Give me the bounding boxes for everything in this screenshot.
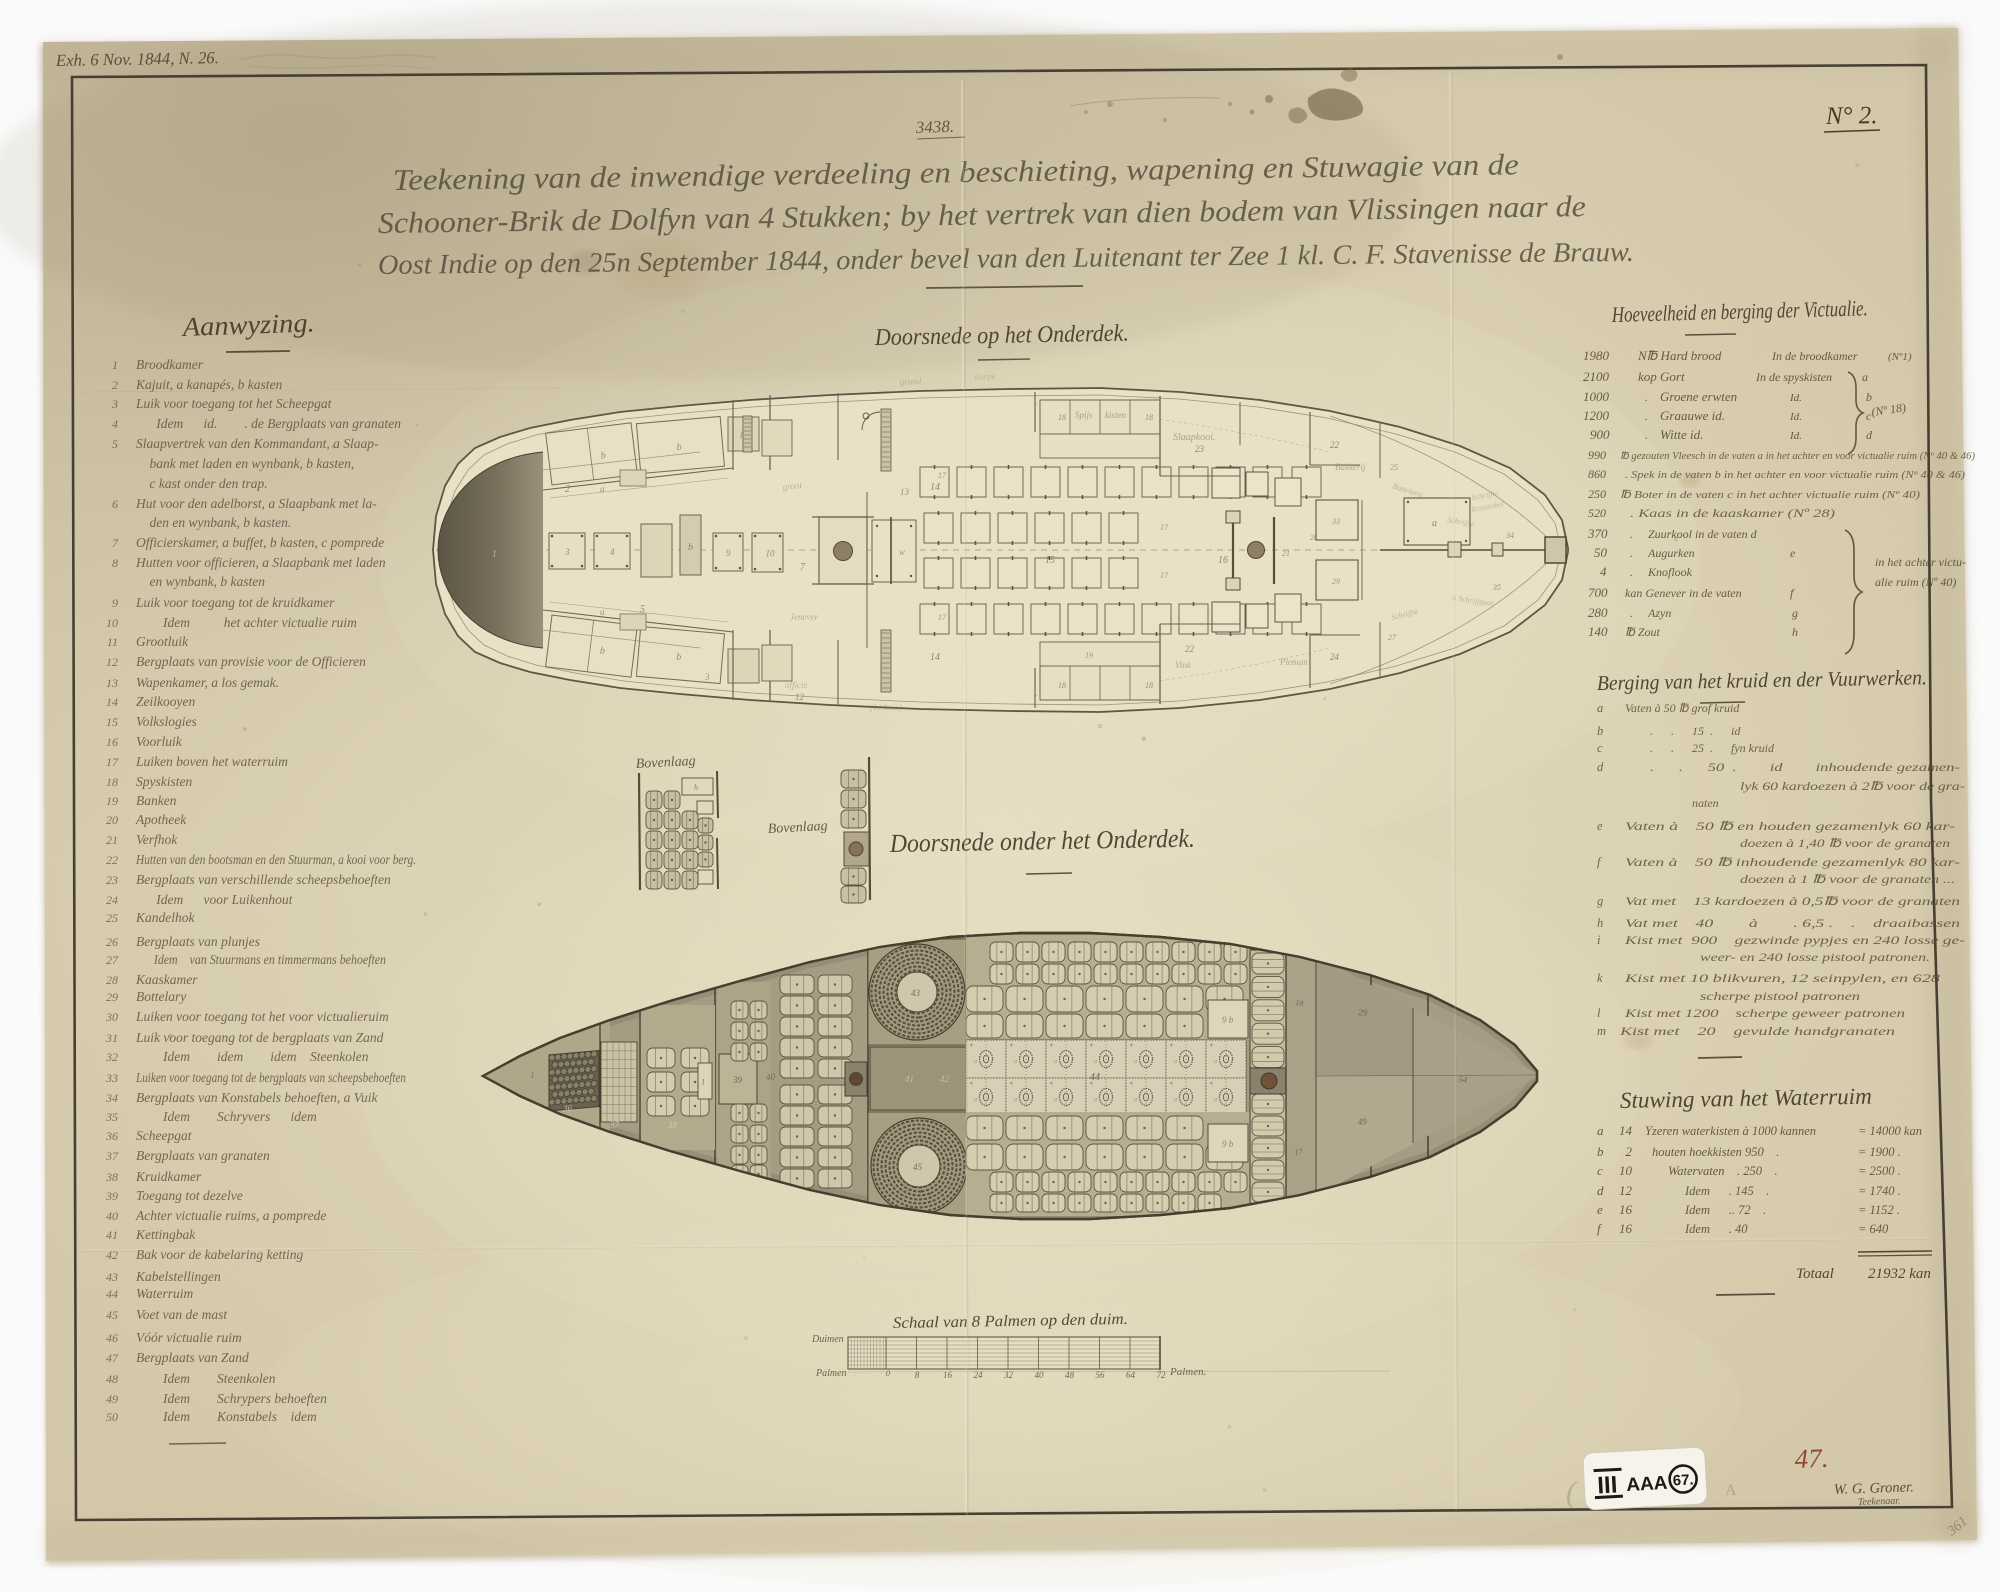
svg-text:Voorluik: Voorluik: [136, 734, 183, 749]
svg-text:Vaten à 50 ℔ grof kruid: Vaten à 50 ℔ grof kruid: [1625, 701, 1740, 715]
svg-text:Kajuit, a kanapés, b kasten: Kajuit, a kanapés, b kasten: [135, 377, 282, 392]
svg-text:24: 24: [106, 893, 118, 907]
svg-text:13: 13: [900, 487, 910, 497]
svg-text:N℔ Hard brood: N℔ Hard brood: [1637, 348, 1722, 363]
svg-text:1200: 1200: [1583, 408, 1610, 423]
svg-text:Aanwyzing.: Aanwyzing.: [180, 307, 315, 342]
svg-text:.: .: [1645, 409, 1648, 423]
svg-text:Kaaskamer: Kaaskamer: [135, 972, 198, 987]
svg-text:b: b: [688, 542, 693, 553]
svg-text:groot: groot: [782, 480, 803, 492]
svg-text:33: 33: [1331, 517, 1340, 526]
svg-text:*: *: [1129, 1080, 1133, 1089]
svg-text:14: 14: [1619, 1123, 1633, 1138]
svg-text:.: .: [1630, 527, 1633, 541]
svg-text:14: 14: [930, 652, 940, 663]
svg-text:*: *: [1129, 1042, 1133, 1051]
svg-text:i: i: [1597, 933, 1601, 947]
svg-text:39: 39: [105, 1189, 118, 1203]
svg-text:10: 10: [1619, 1163, 1633, 1178]
svg-text:Kabelstellingen: Kabelstellingen: [135, 1269, 221, 1284]
svg-text:b: b: [1597, 724, 1603, 738]
svg-text:44: 44: [106, 1287, 118, 1301]
svg-text:Idem id. . de Bergplaats va: Idem id. . de Bergplaats van granaten: [136, 416, 401, 431]
svg-text:Idem van Stuurmans en timmerm: Idem van Stuurmans en timmermans behoeft…: [136, 952, 386, 967]
svg-text:doezen à 1 ℔ voor de granaten: doezen à 1 ℔ voor de granaten ...: [1740, 872, 1955, 886]
svg-text:den en wynbank, b kasten.: den en wynbank, b kasten.: [136, 515, 291, 530]
svg-text:*: *: [1209, 1080, 1213, 1089]
svg-text:Vat met 13 kardoezen à 0,5℔ v: Vat met 13 kardoezen à 0,5℔ voor de gran…: [1625, 894, 1960, 908]
svg-text:*: *: [1049, 1042, 1053, 1051]
svg-text:26: 26: [106, 935, 118, 949]
svg-text:700: 700: [1588, 585, 1608, 600]
svg-text:Vink: Vink: [1175, 660, 1192, 670]
svg-text:42: 42: [940, 1074, 950, 1084]
svg-text:. . 25 . fyn kruid: . . 25 . fyn kruid: [1650, 741, 1775, 755]
svg-text:47.: 47.: [1794, 1443, 1829, 1474]
svg-text:a: a: [1134, 1059, 1137, 1065]
svg-text:Idem .. 72 .: Idem .. 72 .: [1684, 1203, 1766, 1217]
svg-text:.: .: [1645, 428, 1648, 442]
svg-text:Exh. 6 Nov. 1844, N. 26.: Exh. 6 Nov. 1844, N. 26.: [55, 48, 219, 70]
svg-text:Slaapkooi.: Slaapkooi.: [1173, 432, 1216, 443]
svg-text:6: 6: [112, 497, 118, 511]
svg-text:*: *: [1009, 1080, 1013, 1089]
svg-text:Kist met 20 gevulde handgran: Kist met 20 gevulde handgranaten: [1618, 1024, 1895, 1038]
svg-text:5: 5: [112, 437, 118, 451]
svg-text:Palmen.: Palmen.: [1169, 1366, 1206, 1378]
svg-text:14: 14: [106, 695, 118, 709]
svg-text:Duimen: Duimen: [811, 1334, 844, 1345]
svg-text:Kruidkamer: Kruidkamer: [135, 1169, 202, 1184]
svg-text:Idem idem idem Steenkolen: Idem idem idem Steenkolen: [136, 1049, 369, 1064]
svg-text:1: 1: [530, 1070, 535, 1080]
svg-text:alie ruim (Nº 40): alie ruim (Nº 40): [1875, 575, 1956, 589]
svg-text:7: 7: [112, 536, 119, 550]
svg-text:Plenum: Plenum: [1279, 657, 1308, 667]
svg-text:a: a: [1014, 1097, 1017, 1103]
svg-text:17: 17: [938, 613, 947, 622]
svg-text:(Nº1): (Nº1): [1888, 351, 1912, 363]
svg-text:. Kaas in de kaaskamer (Nº: . Kaas in de kaaskamer (Nº 28): [1630, 506, 1835, 520]
svg-text:= 1152 .: = 1152 .: [1858, 1203, 1900, 1217]
svg-text:47: 47: [106, 1351, 119, 1365]
svg-text:28: 28: [106, 973, 118, 987]
svg-text:48: 48: [106, 1372, 118, 1386]
svg-text:29: 29: [1358, 1007, 1368, 1018]
svg-text:doezen à 1,40 ℔ voor de granat: doezen à 1,40 ℔ voor de granaten: [1740, 836, 1950, 850]
svg-text:39: 39: [732, 1075, 743, 1085]
svg-text:weer- en 240 losse pistool pat: weer- en 240 losse pistool patronen.: [1700, 950, 1930, 964]
svg-text:49: 49: [1357, 1116, 1367, 1127]
svg-text:10: 10: [106, 616, 118, 630]
svg-text:b: b: [676, 442, 682, 453]
svg-text:h: h: [694, 783, 698, 792]
svg-text:kan Genever in de vaten: kan Genever in de vaten: [1625, 586, 1742, 600]
svg-text:35: 35: [105, 1110, 118, 1124]
svg-text:e: e: [1597, 1202, 1603, 1217]
svg-text:15: 15: [106, 715, 118, 729]
svg-text:250: 250: [1588, 487, 1606, 501]
svg-text:a: a: [1174, 1059, 1177, 1065]
svg-text:lyk 60 kardoezen à 2℔ voor de: lyk 60 kardoezen à 2℔ voor de gra-: [1740, 779, 1965, 793]
svg-text:b: b: [1597, 1144, 1604, 1159]
svg-text:18: 18: [1145, 413, 1153, 422]
svg-text:a: a: [600, 484, 605, 494]
svg-text:Volkslogies: Volkslogies: [136, 714, 197, 729]
svg-text:en wynbank, b kasten: en wynbank, b kasten: [136, 574, 265, 589]
svg-text:Kist met 900 gezwinde pypjes: Kist met 900 gezwinde pypjes en 240 loss…: [1624, 933, 1965, 947]
svg-text:13: 13: [106, 676, 118, 690]
svg-text:30: 30: [105, 1010, 118, 1024]
svg-text:35: 35: [1492, 583, 1501, 592]
svg-text:520: 520: [1588, 506, 1606, 520]
svg-text:43: 43: [106, 1270, 118, 1284]
svg-text:3: 3: [111, 397, 118, 411]
svg-text:46: 46: [106, 1331, 118, 1345]
svg-text:In de spyskisten: In de spyskisten: [1755, 370, 1832, 384]
svg-text:9 b: 9 b: [1222, 1015, 1234, 1025]
svg-text:Luik voor toegang tot de bergp: Luik voor toegang tot de bergplaats van …: [135, 1030, 384, 1045]
svg-text:18: 18: [106, 775, 118, 789]
svg-text:a: a: [1432, 518, 1437, 529]
svg-text:Hutten van den bootsman en den: Hutten van den bootsman en den Stuurman,…: [135, 852, 416, 867]
svg-text:2100: 2100: [1583, 369, 1610, 384]
svg-text:37: 37: [105, 1149, 119, 1163]
svg-text:Palmen: Palmen: [815, 1368, 847, 1379]
svg-text:c kast onder den trap.: c kast onder den trap.: [136, 476, 268, 491]
svg-text:19: 19: [1085, 651, 1093, 660]
svg-text:.: .: [1645, 390, 1648, 404]
svg-text:℔ gezouten Vleesch in de vate: ℔ gezouten Vleesch in de vaten a in het …: [1620, 451, 1976, 462]
svg-text:50: 50: [1594, 545, 1608, 560]
svg-text:40: 40: [106, 1209, 118, 1223]
svg-text:1: 1: [492, 549, 497, 560]
svg-text:Spyskisten: Spyskisten: [136, 774, 192, 789]
svg-text:11: 11: [107, 635, 118, 649]
svg-text:4: 4: [1600, 564, 1607, 579]
svg-text:W. G. Groner.: W. G. Groner.: [1834, 1479, 1914, 1498]
svg-text:22: 22: [1330, 440, 1340, 450]
svg-text:Spijs: Spijs: [1075, 410, 1093, 420]
svg-text:34: 34: [105, 1091, 118, 1105]
svg-text:Stuwing van het Waterruim: Stuwing van het Waterruim: [1620, 1084, 1872, 1113]
svg-text:h: h: [1597, 916, 1603, 930]
svg-text:a: a: [1174, 1097, 1177, 1103]
svg-text:9 b: 9 b: [1222, 1139, 1234, 1149]
svg-text:9: 9: [726, 548, 731, 558]
svg-text:Doorsnede op het Onderdek.: Doorsnede op het Onderdek.: [874, 321, 1129, 351]
svg-text:g: g: [1597, 894, 1603, 908]
svg-text:41: 41: [905, 1074, 914, 1084]
svg-text:a: a: [1014, 1059, 1017, 1065]
svg-text:= 1740 .: = 1740 .: [1858, 1184, 1901, 1198]
svg-text:15: 15: [1045, 555, 1055, 566]
svg-text:1: 1: [112, 358, 118, 372]
svg-text:2: 2: [565, 484, 570, 495]
svg-text:a: a: [1134, 1097, 1137, 1103]
svg-text:21932 kan: 21932 kan: [1868, 1266, 1931, 1282]
svg-text:Jenever: Jenever: [790, 612, 818, 622]
svg-text:Azyn: Azyn: [1647, 606, 1671, 620]
svg-text:d: d: [1597, 1183, 1604, 1198]
svg-text:a: a: [1214, 1097, 1217, 1103]
svg-text:Verfhok: Verfhok: [136, 832, 178, 847]
svg-text:Idem Schrypers behoeften: Idem Schrypers behoeften: [136, 1391, 327, 1406]
svg-text:a: a: [1094, 1059, 1097, 1065]
svg-text:32: 32: [105, 1050, 118, 1064]
svg-text:AAA: AAA: [1626, 1473, 1668, 1496]
svg-text:Luiken boven het waterruim: Luiken boven het waterruim: [135, 754, 288, 769]
svg-text:kisten: kisten: [1105, 410, 1126, 420]
svg-text:Idem . 40: Idem . 40: [1684, 1222, 1748, 1236]
svg-text:20: 20: [106, 813, 118, 827]
svg-text:Banken: Banken: [136, 793, 177, 808]
svg-text:Idem Steenkolen: Idem Steenkolen: [136, 1371, 276, 1386]
svg-text:27: 27: [1388, 633, 1397, 642]
svg-text:Luik voor toegang tot het Sche: Luik voor toegang tot het Scheepgat: [135, 396, 333, 411]
svg-text:23: 23: [106, 873, 118, 887]
svg-text:45: 45: [106, 1308, 118, 1322]
svg-text:9: 9: [112, 596, 118, 610]
svg-text:Kettingbak: Kettingbak: [135, 1227, 196, 1242]
svg-text:19: 19: [106, 794, 118, 808]
svg-text:officie: officie: [785, 680, 808, 690]
svg-text:a: a: [1862, 370, 1868, 384]
svg-text:Bovenlaag: Bovenlaag: [767, 819, 828, 837]
svg-text:m: m: [1597, 1024, 1606, 1038]
svg-text:Id.: Id.: [1789, 411, 1802, 423]
svg-text:Luik voor toegang tot de kruid: Luik voor toegang tot de kruidkamer: [135, 595, 335, 610]
svg-text:*: *: [1209, 1042, 1213, 1051]
svg-text:4: 4: [112, 417, 118, 431]
svg-text:h: h: [1792, 625, 1798, 639]
svg-text:℔ Boter in de vaten c in het: ℔ Boter in de vaten c in het achter vict…: [1620, 489, 1920, 501]
svg-text:27: 27: [106, 953, 119, 967]
svg-text:67.: 67.: [1672, 1471, 1694, 1489]
svg-text:Wapenkamer, a los gemak.: Wapenkamer, a los gemak.: [136, 675, 279, 690]
svg-text:= 2500 .: = 2500 .: [1858, 1164, 1901, 1178]
svg-text:17: 17: [938, 471, 947, 480]
svg-text:.: .: [1630, 565, 1633, 579]
svg-text:e: e: [1790, 546, 1796, 560]
svg-text:860: 860: [1588, 467, 1606, 481]
svg-text:12: 12: [795, 692, 805, 702]
svg-text:2: 2: [112, 378, 118, 392]
svg-text:18: 18: [1145, 681, 1153, 690]
svg-text:8: 8: [915, 1370, 920, 1380]
svg-text:Grootluik: Grootluik: [136, 634, 189, 649]
svg-text:kop Gort: kop Gort: [1638, 369, 1685, 384]
svg-text:25: 25: [1390, 463, 1398, 472]
svg-text:Zeilkooyen: Zeilkooyen: [136, 694, 195, 709]
svg-text:22: 22: [106, 853, 118, 867]
svg-text:43: 43: [911, 988, 921, 998]
svg-text:= 1900 .: = 1900 .: [1858, 1145, 1901, 1159]
svg-text:10: 10: [766, 549, 776, 559]
svg-text:Officierskamer, a buffet, b ka: Officierskamer, a buffet, b kasten, c po…: [136, 535, 384, 550]
svg-text:w: w: [899, 547, 905, 557]
svg-text:Scheepgat: Scheepgat: [136, 1128, 193, 1143]
svg-text:d: d: [1597, 760, 1604, 774]
svg-text:54: 54: [1458, 1074, 1468, 1085]
svg-text:17: 17: [1160, 523, 1169, 532]
svg-text:990: 990: [1588, 448, 1606, 462]
svg-text:Hut voor den adelborst, a Slaa: Hut voor den adelborst, a Slaapbank met …: [135, 496, 377, 511]
svg-text:koepe: koepe: [974, 371, 996, 382]
svg-text:370: 370: [1587, 526, 1608, 541]
svg-text:Totaal: Totaal: [1796, 1266, 1834, 1282]
svg-text:37: 37: [609, 1120, 620, 1130]
svg-text:= 14000 kan: = 14000 kan: [1858, 1124, 1922, 1138]
svg-text:Apotheek: Apotheek: [135, 812, 187, 827]
svg-text:23: 23: [1195, 444, 1205, 454]
svg-text:Kandelhok: Kandelhok: [135, 910, 195, 925]
svg-text:b: b: [676, 652, 682, 663]
svg-text:140: 140: [1588, 624, 1608, 639]
svg-text:Slaapvertrek van den Kommandan: Slaapvertrek van den Kommandant, a Slaap…: [136, 436, 379, 451]
svg-text:bank met laden en wynbank, b k: bank met laden en wynbank, b kasten,: [136, 456, 354, 471]
svg-text:34: 34: [1505, 531, 1514, 540]
svg-text:l: l: [1597, 1006, 1601, 1020]
svg-text:44: 44: [1090, 1072, 1100, 1083]
svg-text:Bovenlaag: Bovenlaag: [635, 754, 696, 772]
svg-text:17: 17: [106, 755, 119, 769]
svg-text:3: 3: [704, 672, 710, 682]
svg-text:Bergplaats van granaten: Bergplaats van granaten: [136, 1148, 270, 1163]
svg-text:Idem het achter victualie ru: Idem het achter victualie ruim: [136, 615, 357, 630]
svg-text:12: 12: [1619, 1183, 1633, 1198]
svg-text:36: 36: [562, 1103, 572, 1114]
svg-text:Groene erwten: Groene erwten: [1660, 389, 1737, 404]
svg-text:31: 31: [105, 1031, 118, 1045]
svg-text:3438.: 3438.: [914, 117, 954, 137]
svg-text:*: *: [969, 1042, 973, 1051]
svg-text:Toegang tot dezelve: Toegang tot dezelve: [136, 1188, 243, 1203]
svg-text:a: a: [1094, 1097, 1097, 1103]
svg-text:℔ Zout: ℔ Zout: [1625, 625, 1660, 639]
svg-text:41: 41: [106, 1228, 118, 1242]
svg-text:18: 18: [1058, 681, 1066, 690]
svg-text:36: 36: [105, 1129, 118, 1143]
svg-text:Knoflook: Knoflook: [1647, 565, 1693, 579]
svg-text:scherpe pistool patronen: scherpe pistool patronen: [1700, 989, 1860, 1003]
svg-text:16: 16: [943, 1370, 953, 1380]
svg-text:*: *: [1169, 1042, 1173, 1051]
svg-text:4: 4: [610, 547, 615, 557]
svg-text:.: .: [1630, 606, 1633, 620]
svg-text:In de broodkamer: In de broodkamer: [1771, 349, 1858, 363]
svg-text:29: 29: [1332, 577, 1340, 586]
svg-text:Zuurkool in de vaten d: Zuurkool in de vaten d: [1648, 527, 1758, 541]
svg-text:Kist met 1200 scherpe geweer: Kist met 1200 scherpe geweer patronen: [1624, 1006, 1905, 1020]
svg-text:900: 900: [1590, 427, 1610, 442]
svg-text:280: 280: [1588, 605, 1608, 620]
svg-text:18: 18: [1295, 998, 1304, 1008]
svg-text:38: 38: [105, 1170, 118, 1184]
svg-text:Vóór victualie ruim: Vóór victualie ruim: [136, 1330, 242, 1345]
svg-text:grund: grund: [899, 375, 922, 387]
svg-text:c: c: [1597, 741, 1603, 755]
svg-text:12: 12: [106, 655, 118, 669]
svg-text:*: *: [1049, 1080, 1053, 1089]
svg-text:1000: 1000: [1583, 389, 1610, 404]
svg-text:38: 38: [667, 1120, 678, 1130]
svg-text:49: 49: [106, 1392, 118, 1406]
svg-text:Bergplaats van Konstabels beho: Bergplaats van Konstabels behoeften, a V…: [136, 1090, 378, 1105]
svg-text:Graauwe id.: Graauwe id.: [1660, 408, 1725, 423]
svg-text:17: 17: [1160, 571, 1169, 580]
svg-text:Kist met 10 blikvuren, 12 sein: Kist met 10 blikvuren, 12 seinpylen, en …: [1623, 971, 1940, 985]
svg-text:Yzeren waterkisten à 1000 kann: Yzeren waterkisten à 1000 kannen: [1645, 1124, 1816, 1138]
svg-text:Doorsnede onder het Onderdek.: Doorsnede onder het Onderdek.: [889, 824, 1195, 858]
svg-text:2: 2: [1626, 1144, 1633, 1159]
svg-text:Id.: Id.: [1789, 430, 1802, 442]
svg-text:a: a: [1098, 721, 1102, 730]
svg-text:a: a: [1597, 1123, 1604, 1138]
svg-text:N° 2.: N° 2.: [1825, 102, 1878, 130]
svg-text:24: 24: [1330, 652, 1340, 662]
svg-text:e: e: [1597, 819, 1603, 833]
svg-text:naten: naten: [1692, 796, 1719, 810]
svg-text:Augurken: Augurken: [1647, 546, 1695, 560]
svg-text:*: *: [1009, 1042, 1013, 1051]
svg-text:a: a: [974, 1097, 977, 1103]
svg-text:Bergplaats van plunjes: Bergplaats van plunjes: [136, 934, 260, 949]
svg-text:33: 33: [105, 1071, 118, 1085]
svg-text:Luiken voor toegang tot het vo: Luiken voor toegang tot het voor victual…: [135, 1009, 389, 1024]
svg-text:16: 16: [1619, 1221, 1633, 1236]
svg-text:c: c: [1597, 1163, 1603, 1178]
svg-text:50: 50: [106, 1410, 118, 1424]
svg-text:Waterruim: Waterruim: [136, 1286, 194, 1301]
svg-text:21: 21: [1282, 549, 1290, 558]
svg-text:29: 29: [106, 990, 118, 1004]
svg-text:40: 40: [766, 1072, 776, 1082]
svg-text:g: g: [1792, 606, 1798, 620]
svg-text:5: 5: [640, 604, 645, 615]
svg-text:Vaten à 50 ℔ en houden gezame: Vaten à 50 ℔ en houden gezamenlyk 60 kar…: [1625, 819, 1955, 833]
svg-text:in het achter victu-: in het achter victu-: [1875, 555, 1966, 569]
svg-text:8: 8: [112, 556, 118, 570]
svg-text:Vaten à 50 ℔ inhoudende gezam: Vaten à 50 ℔ inhoudende gezamenlyk 80 ka…: [1625, 855, 1960, 869]
svg-text:Teekenaar.: Teekenaar.: [1858, 1496, 1901, 1508]
svg-text:18: 18: [1058, 413, 1066, 422]
svg-text:45: 45: [913, 1162, 923, 1172]
svg-text:. . 15 . id: . . 15 . id: [1650, 724, 1741, 738]
svg-text:= 640: = 640: [1858, 1222, 1889, 1236]
svg-text:. . 50 . id inhoudende g: . . 50 . id inhoudende gezamen-: [1650, 760, 1960, 774]
svg-text:A: A: [1725, 1482, 1737, 1499]
svg-text:Idem Schryvers idem: Idem Schryvers idem: [136, 1109, 317, 1124]
svg-text:Bergplaats van provisie voor d: Bergplaats van provisie voor de Officier…: [136, 654, 366, 669]
svg-text:.: .: [1630, 546, 1633, 560]
svg-text:k: k: [1597, 971, 1603, 985]
svg-text:Hutten voor officieren, a Slaa: Hutten voor officieren, a Slaapbank met …: [135, 555, 386, 570]
svg-text:21: 21: [106, 833, 118, 847]
svg-text:(1e huis): (1e huis): [870, 702, 902, 712]
svg-text:Vat met 40 à . 6,5 . .: Vat met 40 à . 6,5 . . draaibassen: [1625, 916, 1960, 930]
svg-text:16: 16: [1218, 555, 1228, 566]
svg-text:Watervaten . 250 .: Watervaten . 250 .: [1668, 1164, 1778, 1178]
svg-text:*: *: [969, 1080, 973, 1089]
svg-text:*: *: [1089, 1042, 1093, 1051]
svg-text:Bakkerij: Bakkerij: [1335, 462, 1366, 472]
svg-text:16: 16: [106, 735, 118, 749]
svg-text:*: *: [1169, 1080, 1173, 1089]
svg-text:Id.: Id.: [1789, 392, 1802, 404]
svg-text:Bergplaats van Zand: Bergplaats van Zand: [136, 1350, 249, 1365]
